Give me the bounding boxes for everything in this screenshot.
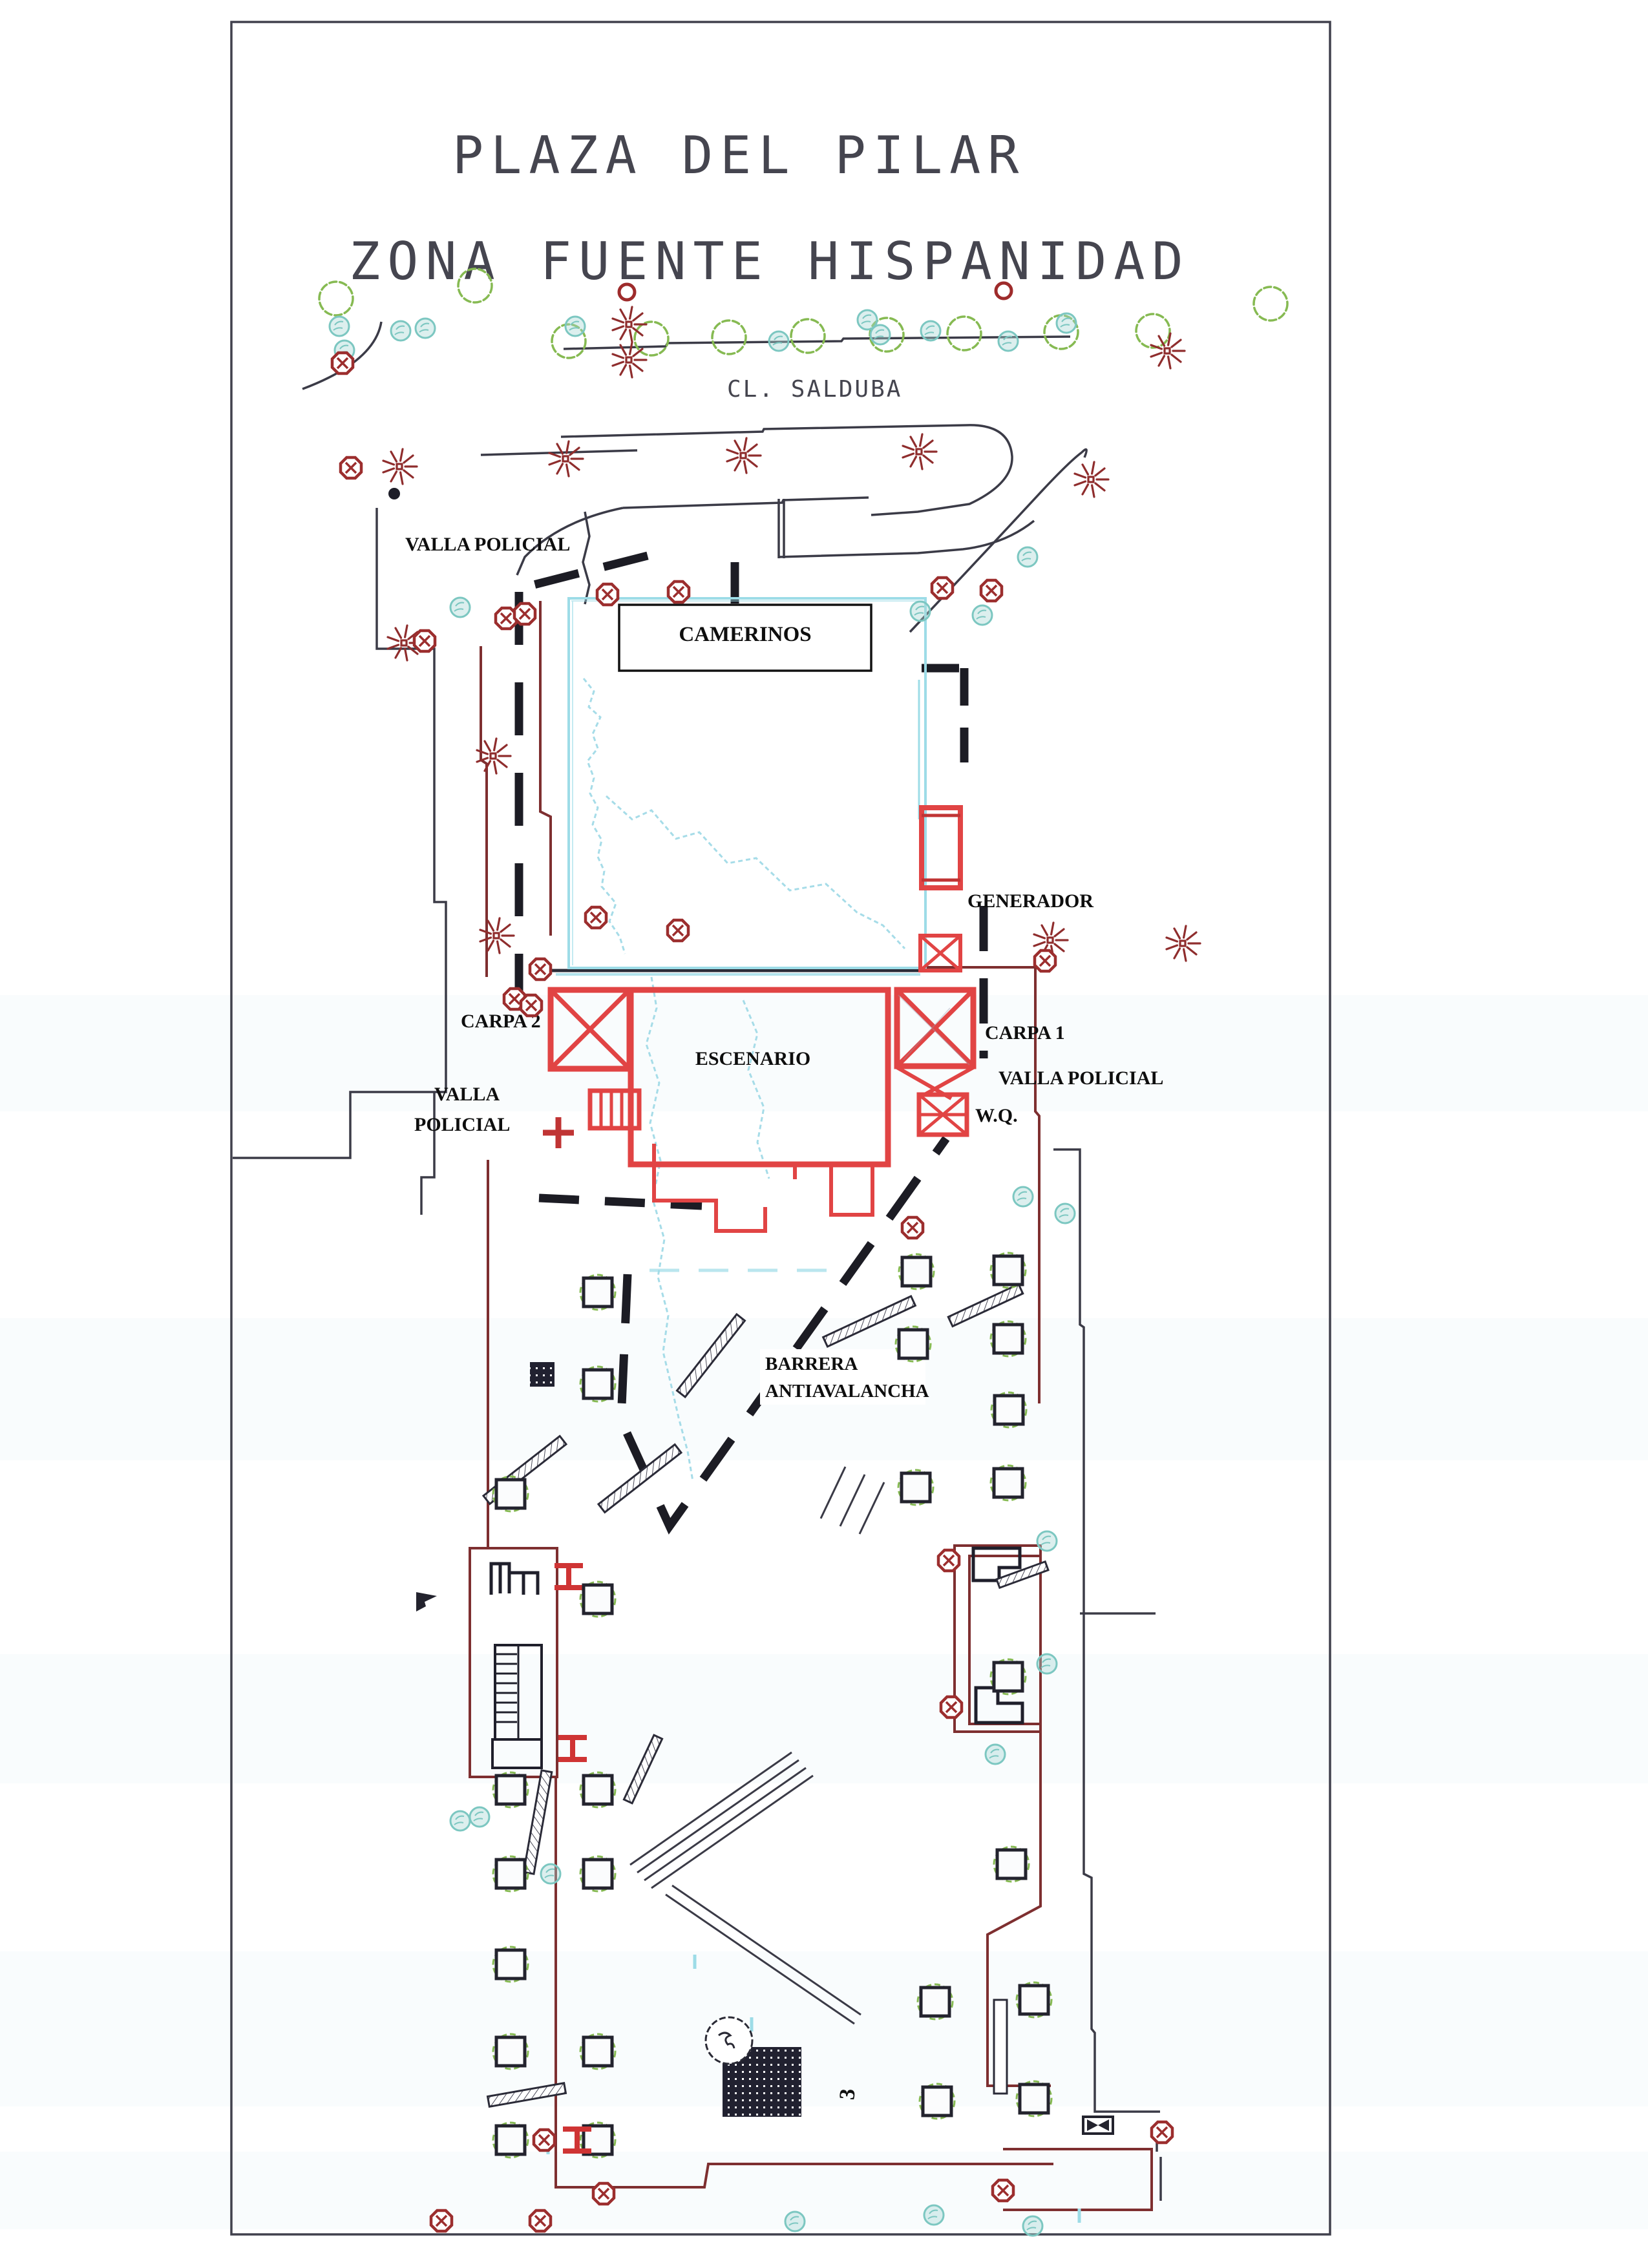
tree-planter-icon bbox=[991, 1465, 1026, 1500]
survey-point-icon bbox=[388, 488, 400, 499]
valla-left-label-line2: POLICIAL bbox=[414, 1114, 510, 1135]
scanned-site-plan-page: PLAZA DEL PILAR ZONA FUENTE HISPANIDAD C… bbox=[0, 0, 1648, 2268]
tree-planter-icon bbox=[918, 1984, 953, 2019]
tree-planter-icon bbox=[580, 1772, 615, 1807]
tree-planter-icon bbox=[493, 1772, 528, 1807]
plan-title: PLAZA DEL PILAR bbox=[452, 125, 1026, 185]
carpa-1-label: CARPA 1 bbox=[985, 1022, 1065, 1044]
tree-planter-icon bbox=[991, 1659, 1026, 1694]
tree-planter-icon bbox=[991, 1321, 1026, 1356]
tree-planter-icon bbox=[580, 2034, 615, 2069]
tree-planter-icon bbox=[493, 1947, 528, 1982]
tree-planter-icon bbox=[493, 1856, 528, 1891]
tree-planter-icon bbox=[1017, 1982, 1051, 2017]
valla-policial-top-label: VALLA POLICIAL bbox=[405, 534, 570, 555]
camerinos-label: CAMERINOS bbox=[679, 623, 811, 646]
tree-over-pad-icon bbox=[706, 2017, 752, 2064]
tree-planter-icon bbox=[896, 1327, 931, 1361]
tree-planter-icon bbox=[580, 1367, 615, 1402]
plan-subtitle: ZONA FUENTE HISPANIDAD bbox=[349, 231, 1190, 291]
tree-planter-icon bbox=[920, 2084, 955, 2119]
barrera-label-line2: ANTIAVALANCHA bbox=[765, 1381, 929, 1402]
tree-planter-icon bbox=[991, 1253, 1026, 1288]
bench-icon bbox=[994, 2000, 1007, 2094]
tree-planter-icon bbox=[493, 2034, 528, 2069]
dark-paved-area-icon bbox=[530, 1362, 555, 1387]
valla-left-label-line1: VALLA bbox=[434, 1084, 500, 1105]
tree-planter-icon bbox=[493, 1476, 528, 1511]
barrera-label-line1: BARRERA bbox=[765, 1354, 858, 1374]
tree-planter-icon bbox=[1017, 2081, 1051, 2116]
tree-planter-icon bbox=[994, 1847, 1029, 1882]
tree-planter-icon bbox=[580, 1582, 615, 1617]
valve-icon bbox=[1083, 2117, 1113, 2134]
wq-label: W.Q. bbox=[975, 1105, 1018, 1126]
tree-planter-icon bbox=[580, 1275, 615, 1310]
tree-planter-icon bbox=[991, 1392, 1026, 1427]
tree-planter-icon bbox=[493, 2123, 528, 2158]
tree-planter-icon bbox=[580, 1856, 615, 1891]
tree-planter-icon bbox=[898, 1470, 933, 1505]
escenario-label: ESCENARIO bbox=[695, 1048, 810, 1069]
site-plan-drawing: PLAZA DEL PILAR ZONA FUENTE HISPANIDAD C… bbox=[0, 0, 1648, 2268]
generador-label: GENERADOR bbox=[967, 890, 1093, 912]
valla-policial-right-label: VALLA POLICIAL bbox=[998, 1067, 1163, 1089]
tree-planter-icon bbox=[899, 1254, 934, 1289]
street-name-label: CL. SALDUBA bbox=[727, 376, 902, 403]
zone-number-marker: 3 bbox=[835, 2088, 860, 2101]
